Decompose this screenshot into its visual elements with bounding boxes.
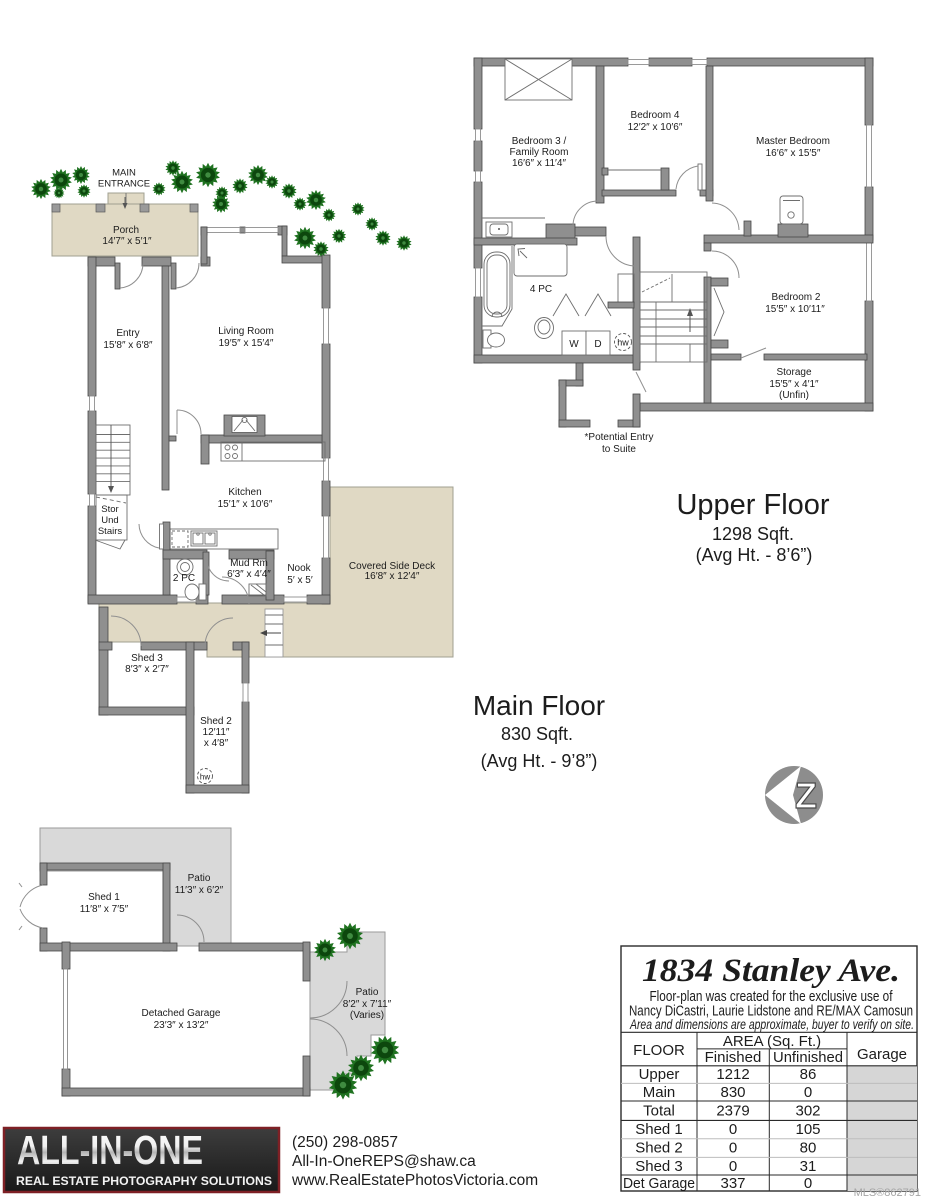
svg-text:14′7″ x 5′1″: 14′7″ x 5′1″	[102, 236, 152, 247]
svg-text:Detached Garage: Detached Garage	[142, 1008, 221, 1019]
svg-text:www.RealEstatePhotosVictoria.c: www.RealEstatePhotosVictoria.com	[291, 1172, 538, 1189]
svg-text:Porch: Porch	[113, 225, 139, 236]
svg-text:(250) 298-0857: (250) 298-0857	[292, 1134, 398, 1151]
svg-text:Family Room: Family Room	[510, 147, 569, 158]
svg-text:0: 0	[729, 1158, 737, 1175]
svg-text:Shed 3: Shed 3	[131, 653, 163, 664]
svg-text:0: 0	[804, 1084, 812, 1101]
svg-text:15′5″ x 4′1″: 15′5″ x 4′1″	[769, 379, 819, 390]
svg-text:Living Room: Living Room	[218, 326, 274, 337]
svg-text:*Potential Entry: *Potential Entry	[585, 432, 654, 443]
svg-text:8′2″ x 7′11″: 8′2″ x 7′11″	[343, 999, 392, 1010]
svg-text:86: 86	[800, 1066, 817, 1083]
svg-text:8′3″ x 2′7″: 8′3″ x 2′7″	[125, 664, 169, 675]
svg-text:Main Floor: Main Floor	[473, 690, 605, 721]
svg-text:Upper Floor: Upper Floor	[676, 489, 829, 521]
svg-text:Patio: Patio	[188, 873, 211, 884]
svg-text:MAIN: MAIN	[112, 168, 136, 179]
svg-text:31: 31	[800, 1158, 817, 1175]
svg-text:Det Garage: Det Garage	[623, 1175, 695, 1192]
svg-text:12′11″: 12′11″	[203, 727, 230, 738]
svg-text:Master Bedroom: Master Bedroom	[756, 136, 830, 147]
svg-text:1212: 1212	[716, 1066, 749, 1083]
svg-text:Entry: Entry	[116, 328, 139, 339]
svg-text:Mud Rm: Mud Rm	[230, 558, 268, 569]
svg-text:Stairs: Stairs	[98, 526, 123, 537]
svg-text:W: W	[569, 339, 579, 350]
svg-text:Bedroom 3 /: Bedroom 3 /	[512, 136, 567, 147]
svg-text:(Avg Ht. - 8’6”): (Avg Ht. - 8’6”)	[696, 545, 813, 565]
svg-text:Und: Und	[101, 515, 118, 526]
svg-text:Total: Total	[643, 1103, 675, 1120]
svg-text:x 4′8″: x 4′8″	[204, 738, 229, 749]
svg-text:830 Sqft.: 830 Sqft.	[501, 724, 573, 744]
svg-text:REAL ESTATE PHOTOGRAPHY SOLUTI: REAL ESTATE PHOTOGRAPHY SOLUTIONS	[16, 1176, 272, 1188]
svg-text:(Unfin): (Unfin)	[779, 390, 809, 401]
svg-text:Upper: Upper	[639, 1066, 680, 1083]
svg-text:337: 337	[720, 1175, 745, 1192]
svg-text:80: 80	[800, 1140, 817, 1157]
svg-text:Main: Main	[643, 1084, 676, 1101]
svg-text:1298 Sqft.: 1298 Sqft.	[712, 524, 794, 544]
svg-text:0: 0	[804, 1175, 812, 1192]
svg-text:FLOOR: FLOOR	[633, 1042, 685, 1059]
svg-text:MLS®862791: MLS®862791	[854, 1187, 921, 1199]
svg-text:830: 830	[720, 1084, 745, 1101]
svg-text:Stor: Stor	[101, 504, 118, 515]
svg-text:D: D	[594, 339, 601, 350]
svg-text:105: 105	[795, 1121, 820, 1138]
svg-text:Storage: Storage	[776, 367, 811, 378]
svg-text:Finished: Finished	[705, 1049, 762, 1066]
svg-text:Bedroom 4: Bedroom 4	[631, 110, 680, 121]
svg-text:4 PC: 4 PC	[530, 284, 552, 295]
svg-text:Shed 1: Shed 1	[88, 892, 120, 903]
svg-text:19′5″ x 15′4″: 19′5″ x 15′4″	[219, 338, 274, 349]
svg-text:Area and dimensions are approx: Area and dimensions are approximate, buy…	[629, 1017, 914, 1032]
svg-text:Garage: Garage	[857, 1046, 907, 1063]
svg-text:302: 302	[795, 1103, 820, 1120]
svg-text:Shed 1: Shed 1	[635, 1121, 683, 1138]
svg-text:6′3″ x 4′4″: 6′3″ x 4′4″	[227, 569, 271, 580]
svg-text:Bedroom 2: Bedroom 2	[772, 292, 821, 303]
svg-text:to Suite: to Suite	[602, 444, 636, 455]
svg-text:16′8″ x 12′4″: 16′8″ x 12′4″	[365, 571, 420, 582]
svg-text:Patio: Patio	[356, 987, 379, 998]
svg-text:ALL-IN-ONE: ALL-IN-ONE	[17, 1127, 203, 1173]
svg-text:hw: hw	[200, 773, 210, 782]
svg-text:16′6″ x 11′4″: 16′6″ x 11′4″	[512, 158, 566, 169]
svg-text:12′2″ x 10′6″: 12′2″ x 10′6″	[628, 122, 683, 133]
svg-text:23′3″ x 13′2″: 23′3″ x 13′2″	[154, 1020, 209, 1031]
svg-text:1834 Stanley Ave.: 1834 Stanley Ave.	[642, 953, 900, 989]
svg-text:0: 0	[729, 1121, 737, 1138]
svg-text:2379: 2379	[716, 1103, 749, 1120]
svg-text:(Varies): (Varies)	[350, 1010, 384, 1021]
svg-text:0: 0	[729, 1140, 737, 1157]
svg-text:5′ x 5′: 5′ x 5′	[287, 575, 313, 586]
svg-text:16′6″ x 15′5″: 16′6″ x 15′5″	[766, 148, 821, 159]
svg-text:15′5″ x 10′11″: 15′5″ x 10′11″	[765, 304, 825, 315]
svg-text:Z: Z	[795, 775, 817, 816]
svg-text:Unfinished: Unfinished	[773, 1049, 843, 1066]
svg-text:15′1″ x 10′6″: 15′1″ x 10′6″	[218, 499, 273, 510]
svg-text:11′8″ x 7′5″: 11′8″ x 7′5″	[80, 904, 129, 915]
svg-text:11′3″ x 6′2″: 11′3″ x 6′2″	[175, 885, 224, 896]
svg-text:Shed 2: Shed 2	[635, 1140, 683, 1157]
svg-text:ENTRANCE: ENTRANCE	[98, 179, 150, 190]
svg-text:2 PC: 2 PC	[173, 573, 195, 584]
svg-text:Shed 2: Shed 2	[200, 716, 232, 727]
svg-text:15′8″ x 6′8″: 15′8″ x 6′8″	[103, 340, 153, 351]
svg-text:(Avg Ht. - 9’8”): (Avg Ht. - 9’8”)	[481, 751, 598, 771]
svg-text:hw: hw	[617, 338, 629, 348]
svg-text:Kitchen: Kitchen	[228, 487, 261, 498]
svg-text:Nook: Nook	[287, 563, 311, 574]
svg-text:AREA (Sq. Ft.): AREA (Sq. Ft.)	[723, 1033, 821, 1050]
svg-text:Shed 3: Shed 3	[635, 1158, 683, 1175]
svg-text:All-In-OneREPS@shaw.ca: All-In-OneREPS@shaw.ca	[292, 1153, 476, 1170]
